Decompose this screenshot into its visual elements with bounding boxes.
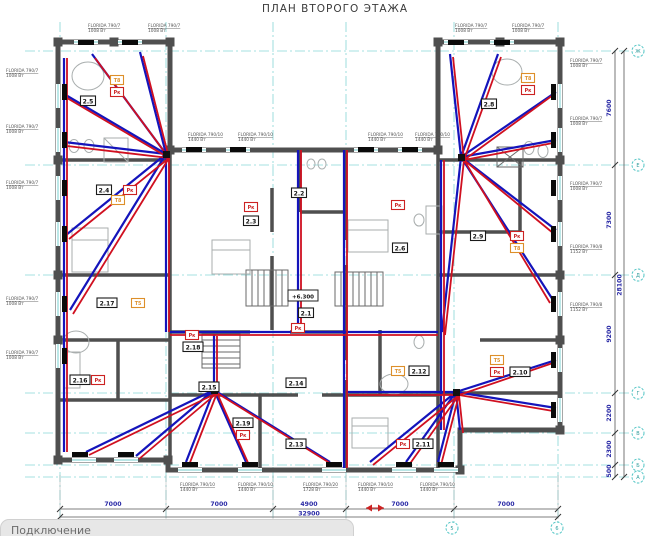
floor-plan-drawing: 2.52.42.32.22.12.62.82.92.102.122.112.13… xyxy=(0,0,670,536)
dimension-value: 9200 xyxy=(606,325,613,343)
dimension-value: 7600 xyxy=(606,99,613,117)
orange-tag: Т5 xyxy=(494,358,501,364)
red-tag: Рк xyxy=(525,88,533,94)
room-label: 2.17 xyxy=(100,301,115,308)
red-tag: Рк xyxy=(400,442,408,448)
axis-bubble-label: Г xyxy=(636,391,639,397)
room-label: 2.9 xyxy=(473,234,484,241)
dimension-value: 7000 xyxy=(497,501,515,508)
room-label: 2.16 xyxy=(73,378,88,385)
dimension-value: 2300 xyxy=(606,440,613,458)
radiator-label: FLORIDA 790/71008 Вт xyxy=(6,296,39,307)
radiator-label: FLORIDA 790/71008 Вт xyxy=(148,23,181,34)
radiator-label: FLORIDA 790/101440 Вт xyxy=(180,482,215,493)
radiator-label: FLORIDA 790/71008 Вт xyxy=(88,23,121,34)
red-tag: Рк xyxy=(395,203,403,209)
radiator-label: FLORIDA 790/71008 Вт xyxy=(512,23,545,34)
room-label: 2.12 xyxy=(412,369,427,376)
axis-bubble-label: Б xyxy=(636,463,640,469)
radiator-label: FLORIDA 790/71008 Вт xyxy=(6,180,39,191)
radiator-label: FLORIDA 790/101440 Вт xyxy=(415,132,450,143)
dimension-value: 7300 xyxy=(606,211,613,229)
dimension-total: 32900 xyxy=(298,511,320,518)
red-tag: Рк xyxy=(295,326,303,332)
axis-bubble-label: А xyxy=(636,475,640,481)
red-tag: Рк xyxy=(248,205,256,211)
radiator-label: FLORIDA 790/201728 Вт xyxy=(303,482,338,493)
dimension-value: 500 xyxy=(606,464,613,478)
red-tag: Рк xyxy=(95,378,103,384)
level-mark: +6.300 xyxy=(292,295,314,301)
orange-tag: Т8 xyxy=(115,198,122,204)
room-label: 2.10 xyxy=(513,370,528,377)
axis-bubble-label: В xyxy=(636,431,640,437)
room-label: 2.19 xyxy=(236,421,251,428)
red-tag: Рк xyxy=(114,90,122,96)
red-tag: Рк xyxy=(189,333,197,339)
radiator-label: FLORIDA 790/101440 Вт xyxy=(420,482,455,493)
red-tag: Рк xyxy=(240,433,248,439)
radiator-label: FLORIDA 790/101440 Вт xyxy=(238,132,273,143)
radiator-label: FLORIDA 790/101440 Вт xyxy=(188,132,223,143)
room-label: 2.4 xyxy=(99,188,110,195)
radiator-label: FLORIDA 790/71008 Вт xyxy=(570,116,603,127)
orange-tag: Т8 xyxy=(514,246,521,252)
footer-label: Подключение xyxy=(11,524,353,536)
radiator-label: FLORIDA 790/71008 Вт xyxy=(570,181,603,192)
axis-bubble-label: Д xyxy=(636,273,640,279)
manifold-points xyxy=(163,151,465,396)
red-tag: Рк xyxy=(494,370,502,376)
room-label: 2.18 xyxy=(186,345,201,352)
dimension-value: 7000 xyxy=(104,501,122,508)
radiator-label: FLORIDA 790/81152 Вт xyxy=(570,244,603,255)
room-label: 2.13 xyxy=(289,442,304,449)
radiator-label: FLORIDA 790/101440 Вт xyxy=(358,482,393,493)
radiator-label: FLORIDA 790/81152 Вт xyxy=(570,302,603,313)
room-label: 2.6 xyxy=(395,246,406,253)
red-tag: Рк xyxy=(514,234,522,240)
axis-bubble-label: Е xyxy=(636,163,639,169)
dimension-total: 28100 xyxy=(617,274,624,296)
orange-tag: Т8 xyxy=(114,78,121,84)
room-label: 2.15 xyxy=(202,385,217,392)
page-footer-bar: Подключение xyxy=(0,519,354,536)
radiator-label: FLORIDA 790/71008 Вт xyxy=(6,124,39,135)
valve-mark xyxy=(366,505,384,512)
room-label: 2.14 xyxy=(289,381,304,388)
dimension-value: 7000 xyxy=(210,501,228,508)
axis-bubble-label: Ж xyxy=(635,49,641,55)
orange-tag: Т5 xyxy=(135,301,142,307)
radiator-label: FLORIDA 790/71008 Вт xyxy=(570,58,603,69)
floor-plan-canvas: ПЛАН ВТОРОГО ЭТАЖА xyxy=(0,0,670,536)
orange-tag: Т8 xyxy=(525,76,532,82)
heating-supply-pipes xyxy=(67,56,553,468)
radiator-label: FLORIDA 790/101440 Вт xyxy=(238,482,273,493)
dimension-value: 2200 xyxy=(606,404,613,422)
radiator-label: FLORIDA 790/71008 Вт xyxy=(6,68,39,79)
room-label: 2.1 xyxy=(301,311,312,318)
room-label: 2.11 xyxy=(416,442,431,449)
room-label: 2.5 xyxy=(83,99,94,106)
radiator-label: FLORIDA 790/71008 Вт xyxy=(455,23,488,34)
axis-bubble-label: 6 xyxy=(555,526,558,532)
room-label: 2.2 xyxy=(294,191,305,198)
axis-bubble-label: 5 xyxy=(450,526,453,532)
radiator-label: FLORIDA 790/71008 Вт xyxy=(6,350,39,361)
room-label: 2.3 xyxy=(246,219,257,226)
dimension-value: 4900 xyxy=(300,501,318,508)
dimension-value: 7000 xyxy=(391,501,409,508)
room-label: 2.8 xyxy=(484,102,495,109)
radiator-label: FLORIDA 790/101440 Вт xyxy=(368,132,403,143)
orange-tag: Т5 xyxy=(395,369,402,375)
red-tag: Рк xyxy=(127,188,135,194)
